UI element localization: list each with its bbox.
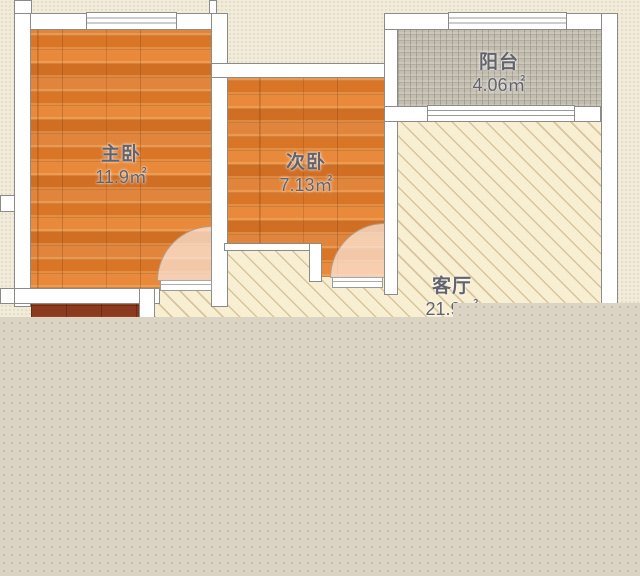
wall-stub-left-low <box>0 288 15 304</box>
wall-master-left <box>14 13 31 307</box>
balcony-name: 阳台 <box>479 52 519 74</box>
wall-stub-top-mid <box>209 0 217 14</box>
master-bedroom-area: 11.9㎡ <box>95 167 147 188</box>
floor-plan: 主卧 11.9㎡ 次卧 7.13㎡ 阳台 4.06㎡ 客厅 21.9㎡ <box>0 0 640 576</box>
wall-second-bottom <box>224 243 316 251</box>
second-bedroom-label: 次卧 7.13㎡ <box>279 152 332 196</box>
master-bedroom-name: 主卧 <box>101 144 141 166</box>
balcony-area: 4.06㎡ <box>472 75 525 96</box>
wall-hall-notch <box>309 243 322 282</box>
balcony-label: 阳台 4.06㎡ <box>472 52 525 96</box>
wall-stub-left-mid <box>0 195 15 212</box>
balcony-inner-window <box>427 105 575 122</box>
wall-stub-top-left <box>14 0 32 14</box>
cropped-gray-area <box>0 303 640 576</box>
wall-master-right <box>211 13 228 307</box>
master-bedroom-label: 主卧 11.9㎡ <box>95 144 147 188</box>
living-room-name: 客厅 <box>432 276 472 298</box>
wall-second-top <box>211 63 398 78</box>
wall-right-outer <box>601 13 618 317</box>
wall-kitchen-right <box>139 288 155 318</box>
kitchen-floor <box>31 304 139 318</box>
master-bedroom-window <box>86 12 177 30</box>
second-bedroom-area: 7.13㎡ <box>279 175 332 196</box>
balcony-outer-window <box>448 12 567 30</box>
second-bedroom-name: 次卧 <box>286 152 326 174</box>
